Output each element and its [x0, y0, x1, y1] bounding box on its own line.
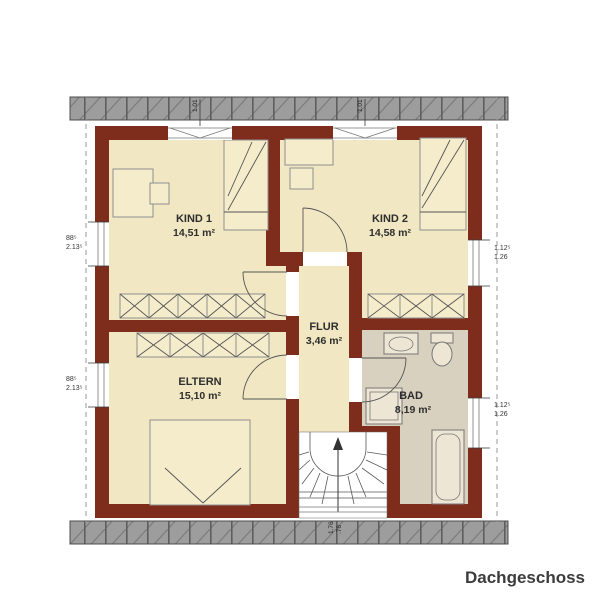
wardrobe-unit [149, 294, 178, 318]
wardrobe-unit [236, 294, 265, 318]
dim-left-bottom-line1: 88⁵ [66, 376, 77, 383]
wardrobe-unit [236, 333, 269, 357]
wardrobe-unit [203, 333, 236, 357]
dim-stair-window-line2: .76 [336, 525, 343, 534]
wardrobe-kind2 [368, 294, 464, 318]
wall-stairs-east [387, 432, 400, 518]
dim-window-top-kind1: 1.01 [192, 99, 199, 112]
chair-kind2 [290, 168, 313, 189]
wardrobe-unit [432, 294, 464, 318]
dim-right-top-line1: 1.12⁵ [494, 245, 511, 252]
wardrobe-unit [120, 294, 149, 318]
room-eltern-area: 15,10 m² [179, 390, 222, 402]
wardrobe-unit [368, 294, 400, 318]
dim-window-top-kind2: 1.01 [357, 99, 364, 112]
roof-band-top [70, 97, 508, 120]
wall-flur-east [349, 252, 362, 438]
room-kind2-area: 14,58 m² [369, 227, 412, 239]
window-left-kind1 [88, 222, 109, 266]
door-gap-kind1 [286, 272, 299, 316]
wardrobe-unit [170, 333, 203, 357]
dim-left-top-line2: 2.13⁵ [66, 244, 83, 251]
window-right-bad [468, 398, 490, 448]
wardrobe-eltern [137, 333, 269, 357]
window-left-eltern [88, 363, 109, 407]
roof-band-bottom [70, 521, 508, 544]
wardrobe-unit [137, 333, 170, 357]
dim-right-bottom-line2: 1.26 [494, 411, 508, 418]
wall-kind2-bad [349, 318, 482, 330]
bed-kind1 [224, 140, 268, 230]
door-gap-kind2 [303, 252, 347, 266]
bed-eltern [150, 420, 250, 505]
toilet-bowl [432, 342, 452, 366]
wardrobe-kind1 [120, 294, 265, 318]
dim-left-top-line1: 88⁵ [66, 235, 77, 242]
stairs-area [299, 432, 387, 518]
floor-plan-svg: 88⁵ 2.13⁵ 88⁵ 2.13⁵ 1.12⁵ 1.26 1.12⁵ 1.2… [0, 0, 600, 600]
dim-right-top-line2: 1.26 [494, 254, 508, 261]
room-flur-name: FLUR [309, 321, 338, 333]
wardrobe-unit [400, 294, 432, 318]
door-gap-bad [349, 358, 362, 402]
room-bad-area: 8,19 m² [395, 404, 432, 416]
room-bad-name: BAD [399, 390, 423, 402]
room-flur-floor [299, 266, 349, 432]
wall-kind1-eltern [95, 320, 299, 332]
room-kind2-name: KIND 2 [372, 213, 408, 225]
dim-left-bottom-line2: 2.13⁵ [66, 385, 83, 392]
dim-stair-window-line1: 1.76 [328, 521, 335, 534]
chair-kind1 [150, 183, 169, 204]
plan-title: Dachgeschoss [465, 568, 585, 587]
door-gap-eltern [286, 355, 299, 399]
room-eltern-name: ELTERN [178, 376, 221, 388]
bed-kind2 [420, 138, 466, 230]
window-right-kind2 [468, 240, 490, 286]
desk-kind2 [285, 139, 333, 165]
wardrobe-unit [207, 294, 236, 318]
staircase [299, 432, 387, 518]
bathtub [432, 430, 464, 504]
room-flur-area: 3,46 m² [306, 335, 343, 347]
room-kind1-name: KIND 1 [176, 213, 212, 225]
furniture-eltern [150, 420, 250, 505]
room-kind1-area: 14,51 m² [173, 227, 216, 239]
dim-right-bottom-line1: 1.12⁵ [494, 402, 511, 409]
desk-kind1 [113, 169, 153, 217]
wardrobe-unit [178, 294, 207, 318]
